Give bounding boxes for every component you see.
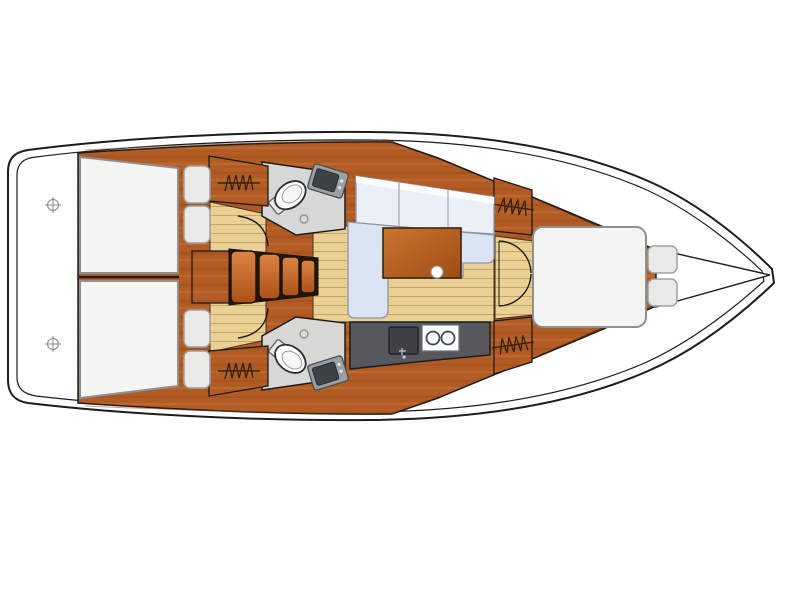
pillow bbox=[184, 166, 210, 203]
companionway-step bbox=[282, 257, 299, 296]
double-berth bbox=[80, 281, 178, 398]
galley-sink-icon bbox=[389, 327, 418, 354]
pillow bbox=[648, 279, 677, 306]
engine-box bbox=[192, 251, 230, 303]
pillow bbox=[184, 206, 210, 243]
pillow bbox=[184, 310, 210, 347]
faucet-dot bbox=[402, 355, 405, 358]
island-double-berth bbox=[533, 227, 646, 327]
double-berth bbox=[80, 157, 178, 273]
companionway-step bbox=[231, 251, 256, 303]
yacht-floor-plan bbox=[0, 0, 800, 600]
head-port bbox=[262, 162, 349, 235]
pillow bbox=[648, 246, 677, 273]
floor-plan-drawing bbox=[0, 0, 800, 600]
table-leg-dot-icon bbox=[431, 266, 443, 278]
head-starboard bbox=[262, 317, 349, 391]
saloon-table bbox=[383, 228, 461, 278]
companionway-step bbox=[301, 260, 315, 293]
companionway bbox=[192, 249, 318, 305]
pillow bbox=[184, 351, 210, 388]
stove-burner bbox=[442, 332, 455, 345]
stove-burner bbox=[427, 332, 440, 345]
companionway-step bbox=[259, 254, 280, 299]
